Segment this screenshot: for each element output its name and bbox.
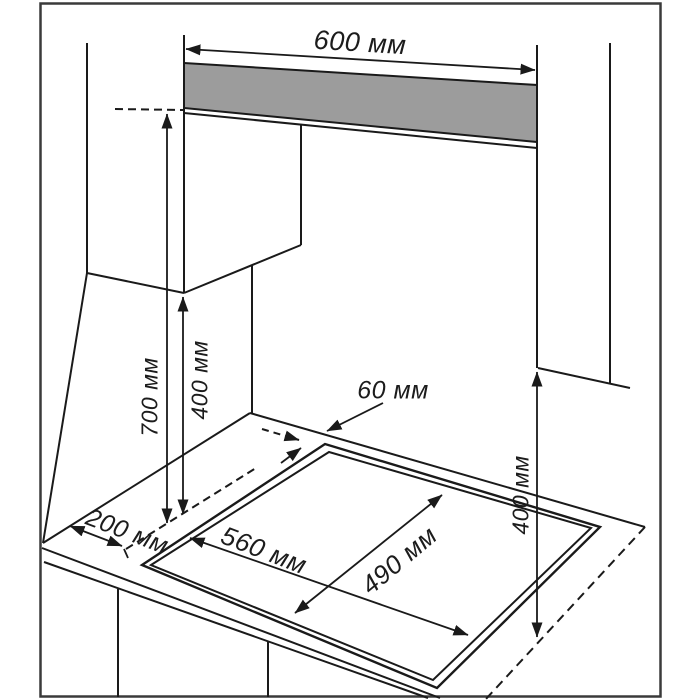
diagram-canvas	[0, 0, 700, 700]
label-height-worktop-to-hood: 700 мм	[139, 357, 162, 436]
label-right-clearance: 400 мм	[510, 455, 533, 534]
label-niche-width: 600 мм	[313, 27, 407, 60]
label-rear-gap: 60 мм	[357, 379, 429, 404]
installation-diagram: 600 мм 700 мм 400 мм 400 мм 60 мм 200 мм…	[0, 0, 700, 700]
label-left-clearance: 400 мм	[189, 340, 212, 419]
